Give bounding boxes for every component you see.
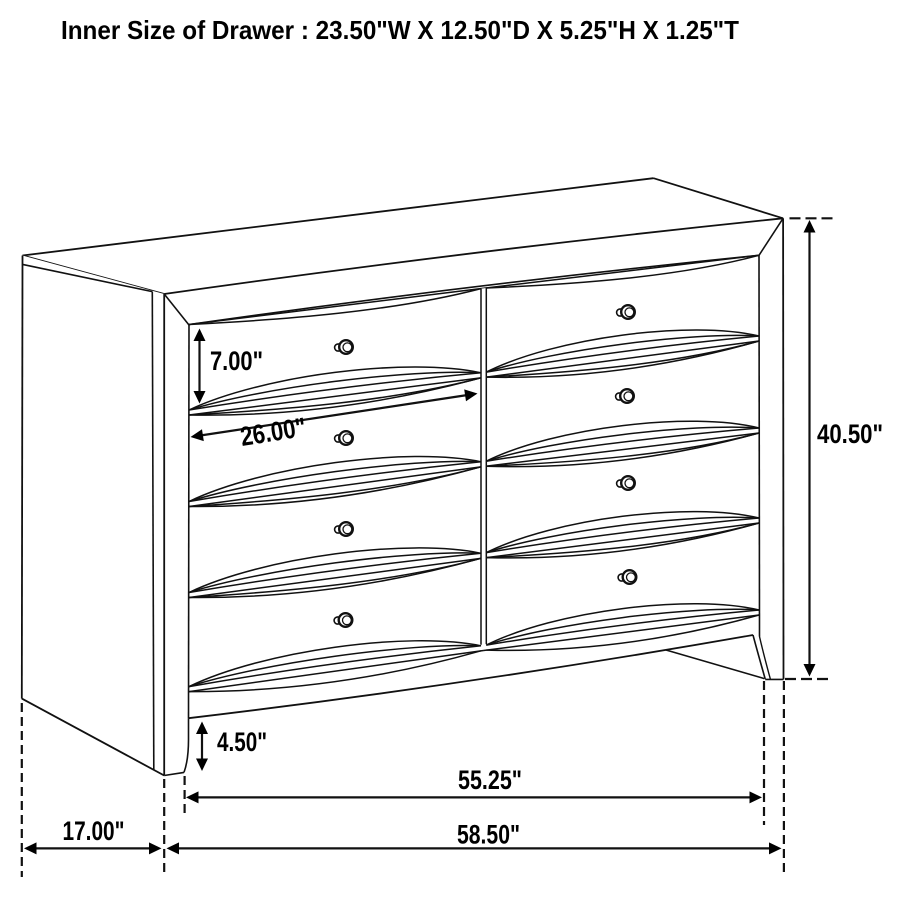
svg-text:58.50": 58.50" <box>457 820 520 850</box>
svg-text:4.50": 4.50" <box>217 727 267 757</box>
svg-text:26.00": 26.00" <box>238 412 308 452</box>
svg-text:7.00": 7.00" <box>210 346 263 376</box>
svg-text:40.50": 40.50" <box>817 419 883 449</box>
svg-text:55.25": 55.25" <box>458 765 522 795</box>
svg-text:17.00": 17.00" <box>63 816 125 846</box>
svg-text:Inner Size of Drawer : 23.50"W: Inner Size of Drawer : 23.50"W X 12.50"D… <box>61 15 739 45</box>
